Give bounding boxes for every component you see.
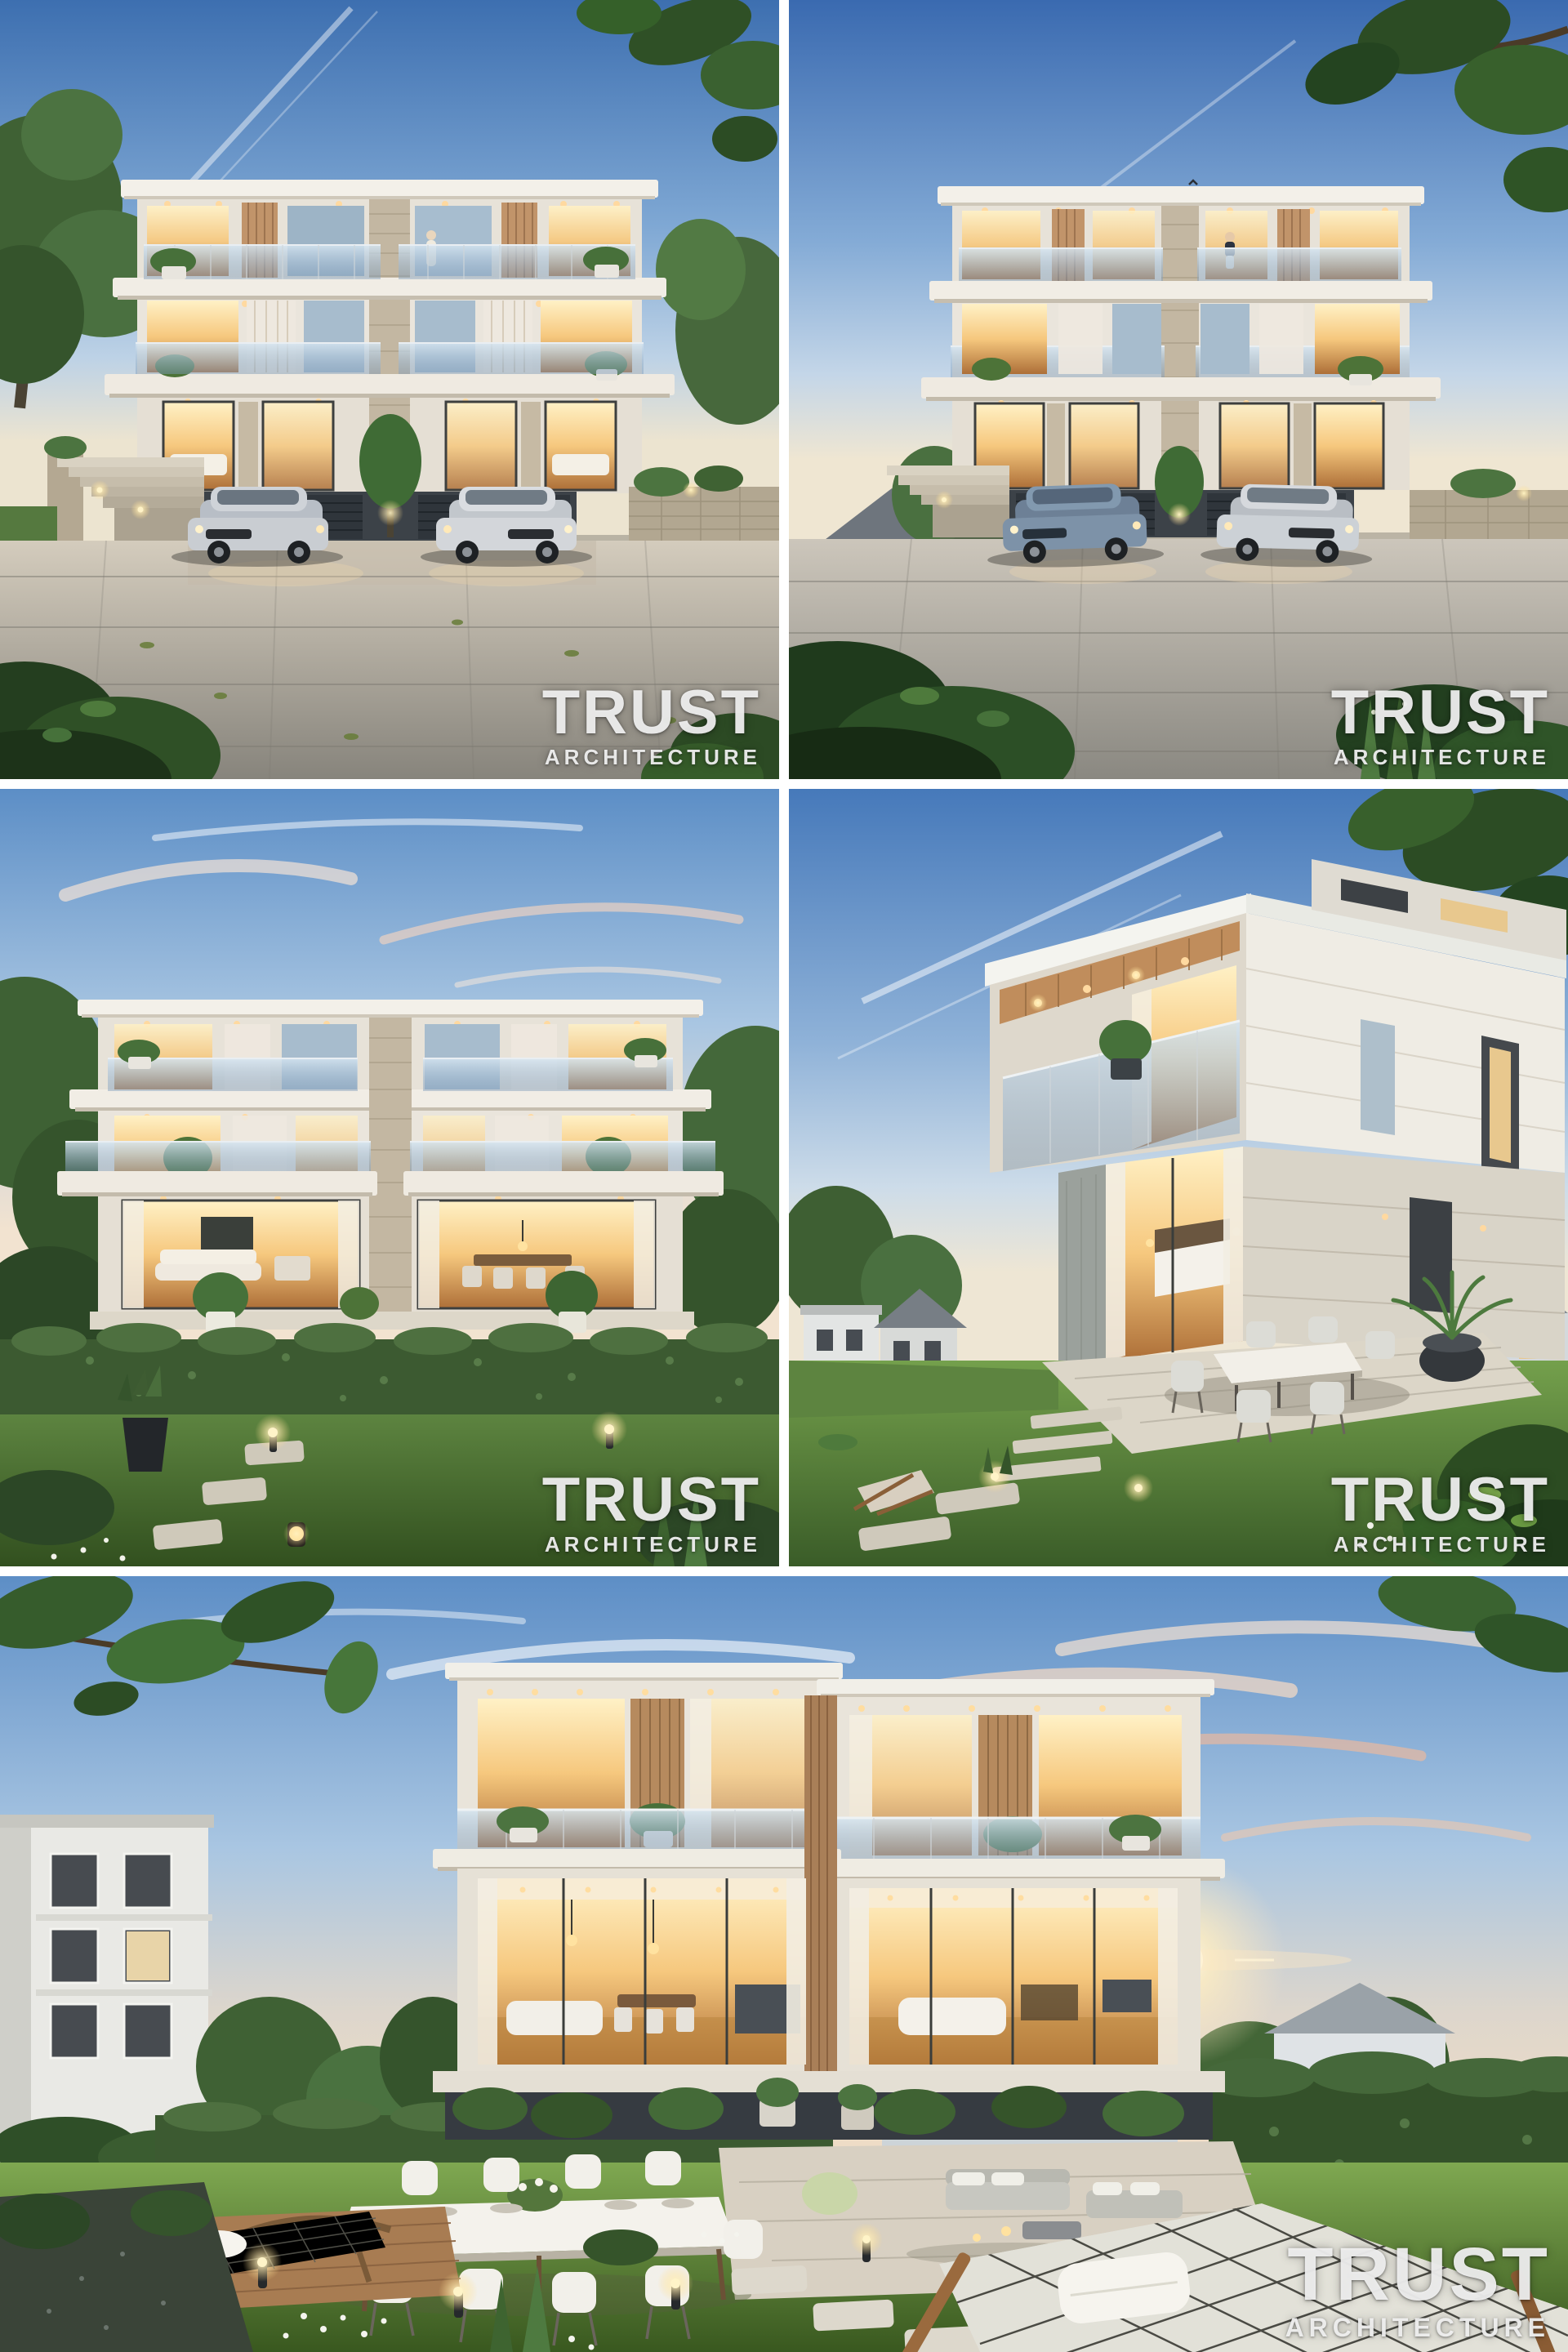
building [57,1000,724,1333]
watermark-subtitle: ARCHITECTURE [1285,2314,1550,2341]
garden-light-2 [1124,1473,1153,1503]
panel-front-elevation-a: TRUST ARCHITECTURE [0,0,779,779]
watermark-brand: TRUST [542,682,761,744]
trust-architecture-watermark: TRUST ARCHITECTURE [1331,1469,1550,1555]
trust-architecture-watermark: TRUST ARCHITECTURE [1285,2237,1550,2341]
panel-backyard-panorama: TRUST ARCHITECTURE [0,1576,1568,2352]
trust-architecture-watermark: TRUST ARCHITECTURE [1331,682,1550,768]
watermark-subtitle: ARCHITECTURE [542,746,761,768]
floor-slab-2 [113,278,666,297]
scene-garden-elevation [0,789,779,1566]
roof-slab [121,180,658,198]
lantern [283,1521,310,1547]
living-room-interior-right [849,1888,1178,2065]
scene-front-elevation-a [0,0,779,779]
watermark-brand: TRUST [1331,1469,1550,1531]
panel-garden-elevation: TRUST ARCHITECTURE [0,789,779,1566]
watermark-brand: TRUST [1331,682,1550,744]
watermark-subtitle: ARCHITECTURE [1331,1534,1550,1555]
duplex-building [433,1663,1225,2140]
watermark-subtitle: ARCHITECTURE [542,1534,761,1555]
panel-front-elevation-b: TRUST ARCHITECTURE [789,0,1568,779]
trust-architecture-watermark: TRUST ARCHITECTURE [542,682,761,768]
watermark-brand: TRUST [1285,2237,1550,2312]
scene-front-elevation-b [789,0,1568,779]
panel-corner-perspective: TRUST ARCHITECTURE [789,789,1568,1566]
ground-wall-right-face [1243,1147,1565,1361]
floor-slab-1 [105,374,675,395]
scene-corner-perspective [789,789,1568,1566]
living-room-interior-left [478,1878,806,2065]
watermark-subtitle: ARCHITECTURE [1331,746,1550,768]
trust-architecture-watermark: TRUST ARCHITECTURE [542,1469,761,1555]
watermark-brand: TRUST [542,1469,761,1531]
concrete-pier [1058,1165,1106,1370]
